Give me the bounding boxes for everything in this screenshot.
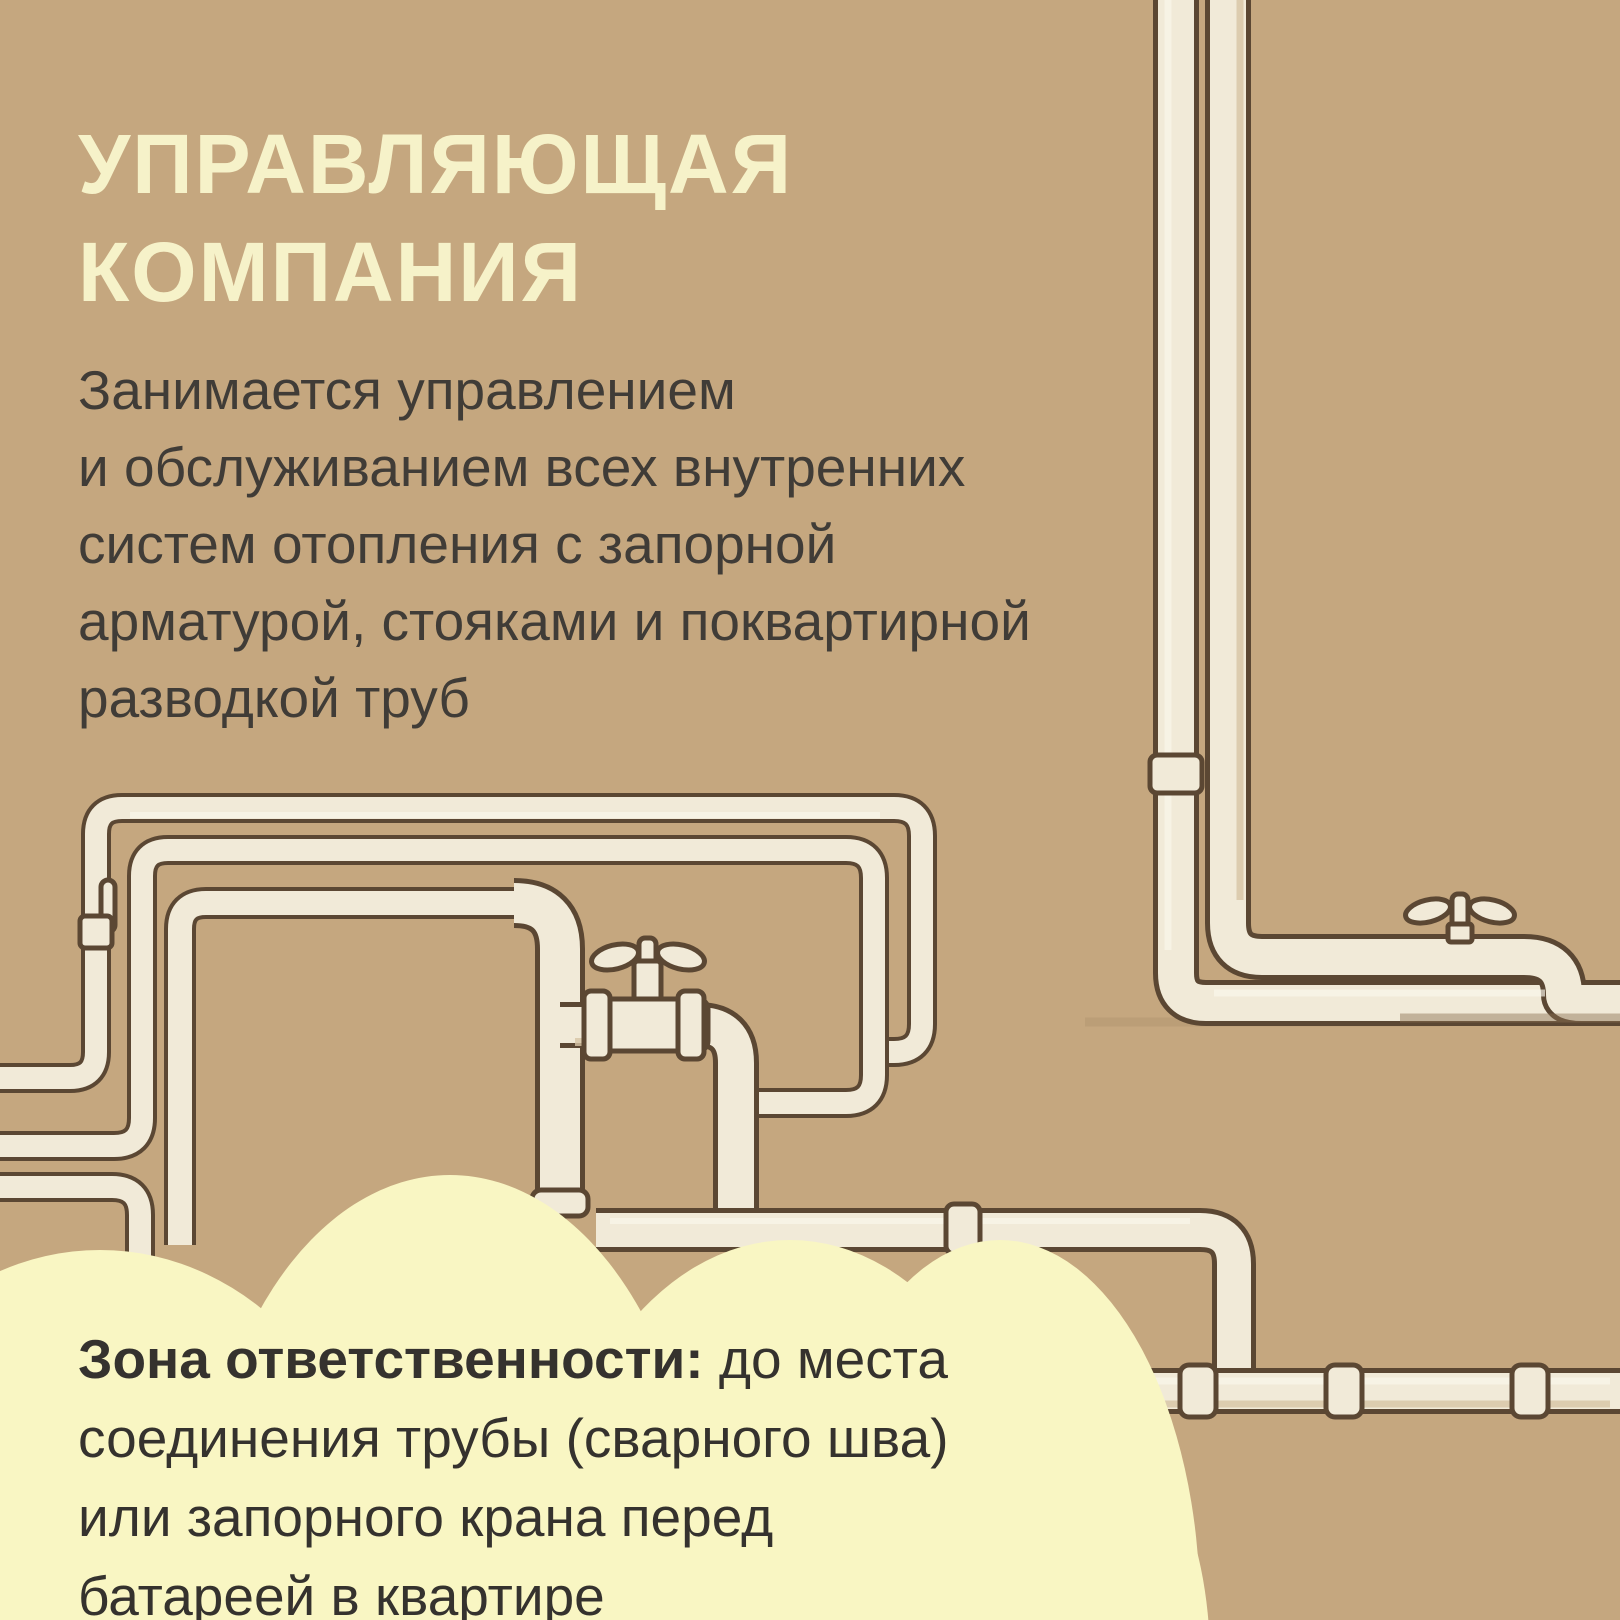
description-line: систем отопления с запорной (78, 506, 1031, 583)
pipe-coupling (1512, 1365, 1548, 1417)
central-valve-assembly (514, 903, 736, 1252)
note-label: Зона ответственности: (78, 1328, 704, 1390)
title-line-1: УПРАВЛЯЮЩАЯ (78, 110, 793, 218)
description-line: и обслуживанием всех внутренних (78, 429, 1031, 506)
description-paragraph: Занимается управлением и обслуживанием в… (78, 352, 1031, 737)
pipe-coupling (1180, 1365, 1216, 1417)
infographic-card: УПРАВЛЯЮЩАЯ КОМПАНИЯ Занимается управлен… (0, 0, 1620, 1620)
pipe-coupling (1326, 1365, 1362, 1417)
description-line: Занимается управлением (78, 352, 1031, 429)
pipe-union (80, 916, 112, 948)
note-line: батареей в квартире (78, 1557, 949, 1620)
description-line: разводкой труб (78, 660, 1031, 737)
description-line: арматурой, стояками и поквартирной (78, 583, 1031, 660)
responsibility-note: Зона ответственности: до места соединени… (78, 1320, 949, 1620)
title-line-2: КОМПАНИЯ (78, 218, 793, 326)
note-line: соединения трубы (сварного шва) (78, 1399, 949, 1478)
note-line: или запорного крана перед (78, 1478, 949, 1557)
note-label-rest: до места (704, 1328, 948, 1390)
shutoff-valve-icon (584, 938, 708, 1059)
pipe-coupling (1150, 755, 1202, 793)
page-title: УПРАВЛЯЮЩАЯ КОМПАНИЯ (78, 110, 793, 326)
note-line: Зона ответственности: до места (78, 1320, 949, 1399)
right-riser-pipes (1150, 0, 1620, 1018)
